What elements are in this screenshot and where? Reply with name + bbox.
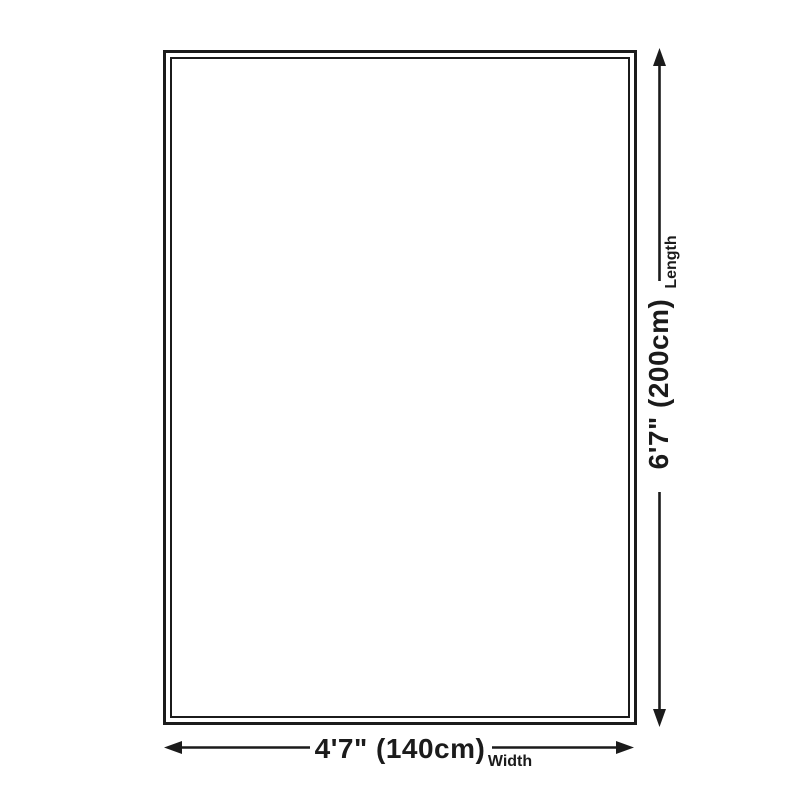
width-value: 4'7" (140cm): [315, 735, 486, 763]
arrow-right-icon: [616, 741, 634, 754]
width-label: Width: [488, 754, 532, 770]
rug-inner-border: [170, 57, 630, 718]
length-label: Length: [664, 235, 680, 288]
arrow-up-icon: [653, 48, 666, 66]
rug-outline: [163, 50, 637, 725]
dimension-diagram: 6'7" (200cm) Length 4'7" (140cm) Width: [0, 0, 800, 800]
length-value: 6'7" (200cm): [645, 299, 673, 470]
arrow-down-icon: [653, 709, 666, 727]
arrow-left-icon: [164, 741, 182, 754]
